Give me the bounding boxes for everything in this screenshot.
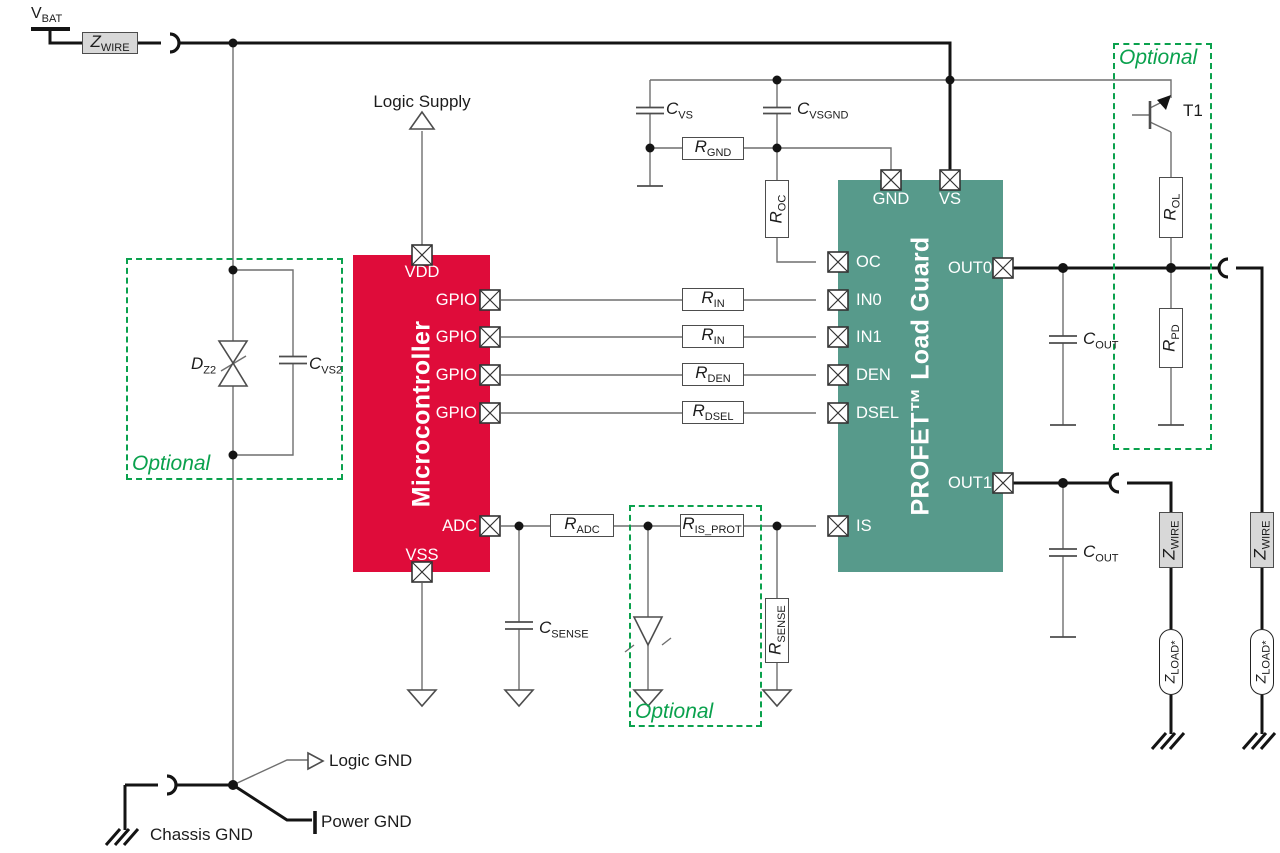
label-c-vs: CVS — [666, 99, 693, 121]
resistor-r-adc: RADC — [550, 514, 614, 537]
pin-label-gpio-3: GPIO — [405, 404, 477, 423]
pin-label-out0: OUT0 — [908, 259, 992, 278]
load-z-load-out0: ZLOAD* — [1250, 629, 1274, 695]
label-c-sense: CSENSE — [539, 618, 589, 640]
label-c-vsgnd: CVSGND — [797, 99, 848, 121]
resistor-r-in0: RIN — [682, 288, 744, 311]
pin-label-adc: ADC — [405, 517, 477, 536]
pin-label-in0: IN0 — [856, 291, 882, 310]
impedance-z-wire-out1: ZWIRE — [1159, 512, 1183, 568]
connector-icon — [167, 776, 176, 794]
pin-label-vdd: VDD — [392, 263, 452, 282]
resistor-r-in1: RIN — [682, 325, 744, 348]
label-power-gnd: Power GND — [321, 812, 412, 832]
optional-region-zener — [629, 505, 762, 727]
pin-label-vss: VSS — [392, 546, 452, 565]
connector-icon — [170, 34, 179, 52]
connector-icon — [1219, 259, 1228, 277]
resistor-r-oc: ROC — [765, 180, 789, 238]
resistor-r-dsel: RDSEL — [682, 401, 744, 424]
label-d-z2: DZ2 — [191, 354, 216, 376]
logic-gnd-arrow-icon — [308, 753, 323, 769]
pin-label-oc: OC — [856, 253, 881, 272]
label-c-out1: COUT — [1083, 542, 1119, 564]
resistor-r-gnd: RGND — [682, 137, 744, 160]
resistor-r-sense: RSENSE — [765, 598, 789, 663]
optional-label-middle: Optional — [635, 700, 713, 724]
pin-label-in1: IN1 — [856, 328, 882, 347]
logic-ground-icon — [505, 690, 533, 706]
connector-icon — [1110, 474, 1119, 492]
resistor-r-ol: ROL — [1159, 177, 1183, 238]
label-logic-gnd: Logic GND — [329, 751, 412, 771]
logic-supply-arrow-icon — [410, 112, 434, 129]
pin-label-gpio-0: GPIO — [405, 291, 477, 310]
impedance-z-wire-supply: ZWIRE — [82, 32, 138, 54]
pin-label-dsel: DSEL — [856, 404, 899, 423]
label-t1: T1 — [1183, 101, 1203, 121]
pin-label-gpio-1: GPIO — [405, 328, 477, 347]
pin-label-is: IS — [856, 517, 872, 536]
pin-label-out1: OUT1 — [908, 474, 992, 493]
chassis-gnd-icon — [1243, 733, 1275, 749]
label-c-out0: COUT — [1083, 329, 1119, 351]
impedance-z-wire-out0: ZWIRE — [1250, 512, 1274, 568]
circuit-diagram: Optional Optional Optional Microcontroll… — [0, 0, 1280, 853]
pin-label-gpio-2: GPIO — [405, 366, 477, 385]
label-c-vs2: CVS2 — [309, 354, 342, 376]
resistor-r-pd: RPD — [1159, 308, 1183, 368]
logic-ground-icon — [408, 690, 436, 706]
load-z-load-out1: ZLOAD* — [1159, 629, 1183, 695]
optional-label-right: Optional — [1119, 46, 1197, 70]
logic-ground-icon — [763, 690, 791, 706]
label-v-bat: VBAT — [31, 5, 62, 25]
resistor-r-den: RDEN — [682, 363, 744, 386]
chassis-gnd-icon — [1152, 733, 1184, 749]
pin-label-den: DEN — [856, 366, 891, 385]
pin-label-vs: VS — [928, 190, 972, 209]
label-chassis-gnd: Chassis GND — [150, 825, 253, 845]
chassis-gnd-icon — [106, 829, 138, 845]
optional-label-left: Optional — [132, 452, 210, 476]
chassis-gnd-icons — [106, 733, 1275, 845]
resistor-r-is-prot: RIS_PROT — [680, 514, 744, 537]
pin-label-gnd: GND — [866, 190, 916, 209]
label-logic-supply: Logic Supply — [342, 92, 502, 112]
